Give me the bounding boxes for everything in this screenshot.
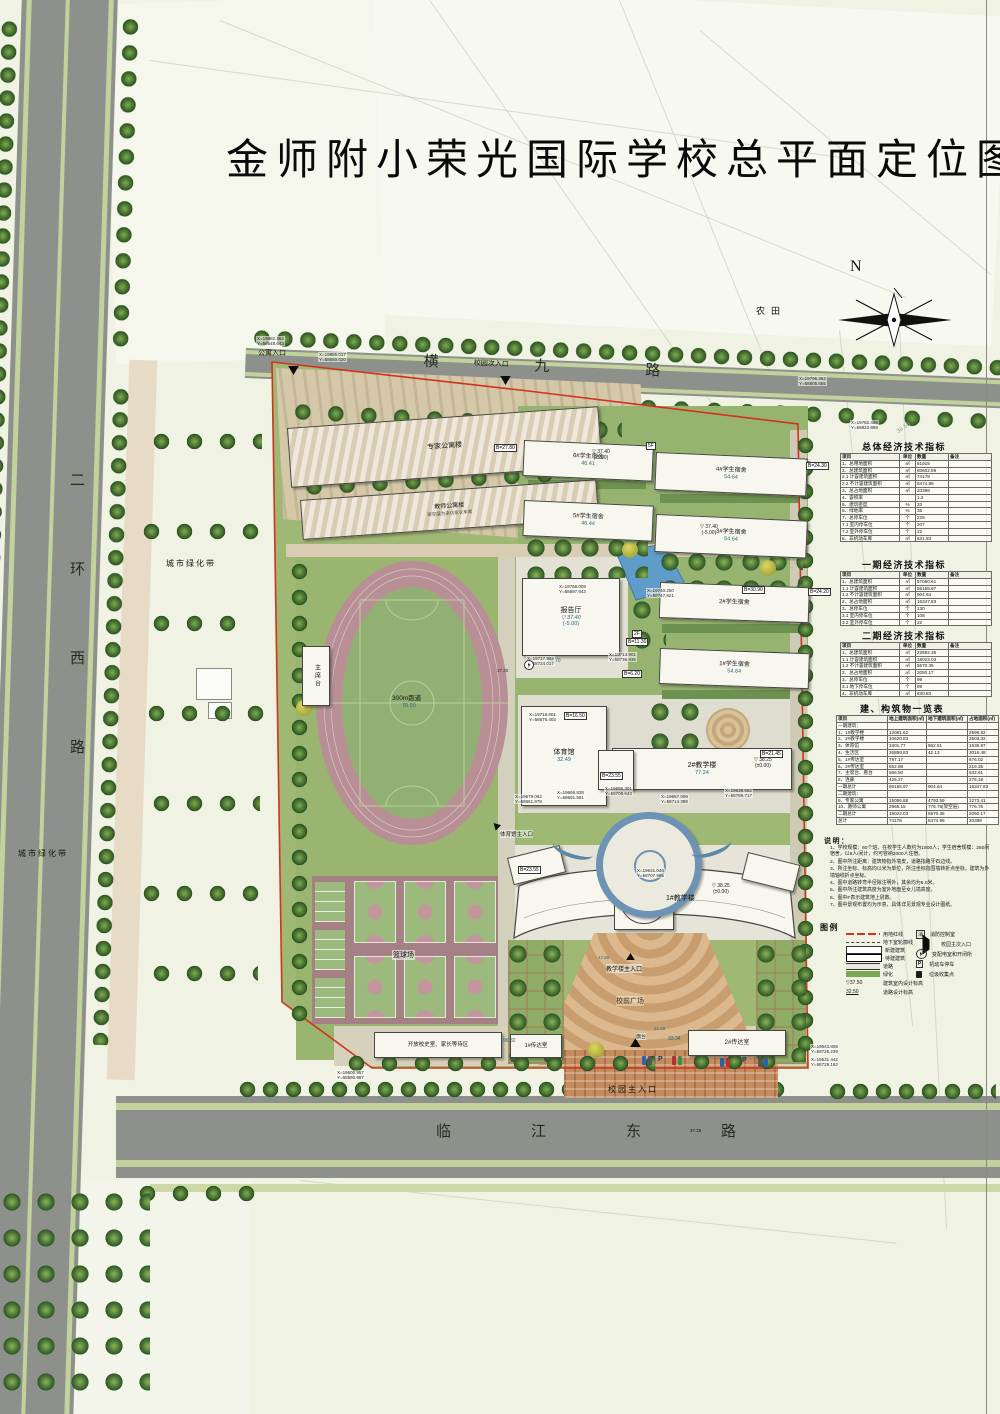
- table-cell: 2、总占地面积: [841, 670, 900, 677]
- height-tag: 2F: [632, 630, 642, 638]
- building-level-base: (-5.00): [563, 621, 579, 627]
- building-label: 2#学生宿舍: [719, 599, 750, 607]
- table-cell: 80602.99: [916, 467, 949, 474]
- table-cell: 3.1 地下停车位: [841, 683, 900, 690]
- height-tag: B=21.45: [760, 750, 783, 758]
- table-cell: [949, 528, 992, 535]
- table-cell: 9、专家公寓: [837, 797, 888, 804]
- rostrum-building: 主席台: [302, 646, 330, 706]
- table-cell: 12081.62: [888, 729, 927, 736]
- volleyball-court: [315, 882, 345, 922]
- table-cell: [927, 756, 968, 763]
- table-cell: 7、总停车位: [841, 515, 900, 522]
- table-cell: 1.2: [916, 494, 949, 501]
- green-belt-label-southwest: 城市绿化带: [18, 848, 68, 859]
- hedge-row: [662, 690, 790, 699]
- table-cell: 3、体育馆: [837, 743, 888, 750]
- table-header-cell: 项目: [841, 454, 900, 461]
- coordinate-label: X=19656.301Y=58708.643: [604, 786, 633, 796]
- table-cell: ㎡: [900, 585, 916, 592]
- front-plaza-label: 校前广场: [616, 996, 644, 1006]
- table-header-cell: 单位: [900, 643, 916, 650]
- table-cell: 8、非机动车库: [841, 535, 900, 542]
- road-symbol: [846, 963, 880, 970]
- drawing-frame-line: [986, 0, 987, 1414]
- table-cell: 35: [916, 508, 949, 515]
- table-cell: 425.27: [888, 777, 927, 784]
- table-cell: 652.98: [888, 763, 927, 770]
- building-length: 54.64: [727, 669, 741, 676]
- table-header-cell: 项目: [841, 572, 900, 579]
- table-cell: 个: [900, 605, 916, 612]
- level-mark: ▽ 37.40(-5.00): [700, 525, 718, 536]
- legend-item-transformer: 变配电室和开闭所: [916, 950, 972, 958]
- legend-item-entrance: 校园主次入口: [916, 940, 971, 948]
- path-elevation: 37.30: [497, 668, 508, 673]
- road-verge-line: [116, 1103, 1000, 1110]
- parking-strip-west: P: [640, 1054, 684, 1068]
- table-cell: [927, 736, 968, 743]
- building-list-table: 项目地上建筑面积(㎡)地下建筑面积(㎡)占地面积(㎡)一期建筑：1、1#教学楼1…: [836, 715, 999, 825]
- table-cell: [949, 515, 992, 522]
- table-cell: 862.51: [927, 743, 968, 750]
- table-cell: [900, 494, 916, 501]
- table-cell: [968, 790, 999, 797]
- table-cell: 1.1 计容建筑面积: [841, 656, 900, 663]
- phase1-indicators-title: 一期经济技术指标: [862, 558, 946, 571]
- table-cell: 总计: [837, 817, 888, 824]
- notes-title: 说明：: [824, 836, 850, 846]
- level-mark: ▽ 37.40(-5.00): [592, 450, 610, 461]
- table-cell: 7.1 室内停车位: [841, 521, 900, 528]
- table-cell: 一期建筑：: [837, 722, 888, 729]
- future-building-symbol: [846, 954, 882, 962]
- table-cell: 2050.17: [916, 670, 949, 677]
- table-cell: 74178: [916, 474, 949, 481]
- table-cell: 个: [900, 515, 916, 522]
- table-cell: 个: [900, 528, 916, 535]
- gatehouse2-building: 2#传达室: [688, 1030, 786, 1056]
- table-cell: [949, 605, 992, 612]
- table-cell: 20398: [916, 487, 949, 494]
- phase1-indicators-table: 项目单位数量备注1、总建筑面积㎡57060.611.1 计容建筑面积㎡56155…: [840, 571, 992, 626]
- basketball-court: [454, 881, 496, 943]
- table-cell: [927, 790, 968, 797]
- track-label: 300m跑道: [392, 692, 421, 702]
- table-header-cell: 占地面积(㎡): [968, 716, 999, 723]
- table-cell: 904.64: [916, 592, 949, 599]
- belt-tree-row: [150, 612, 250, 635]
- basketball-court: [354, 881, 396, 943]
- note-item: 3、所注坐标、标高均以米为单位，所注坐标指围墙转折点坐标，建筑为外墙轴线折点坐标…: [830, 867, 992, 880]
- track-length: 70.00: [402, 703, 416, 709]
- table-cell: 15056.88: [888, 797, 927, 804]
- overall-indicators-title: 总体经济技术指标: [862, 440, 946, 453]
- table-cell: ㎡: [900, 592, 916, 599]
- table-cell: 23592.38: [916, 649, 949, 656]
- apartment-entrance-label: 公寓入口: [258, 348, 286, 358]
- table-cell: 1、总建筑面积: [841, 649, 900, 656]
- table-header-cell: 数量: [916, 454, 949, 461]
- table-cell: [949, 592, 992, 599]
- table-cell: 2.2 不计容建筑面积: [841, 481, 900, 488]
- table-cell: [949, 612, 992, 619]
- table-cell: 1.2 不计容建筑面积: [841, 592, 900, 599]
- table-cell: 4、生活区: [837, 749, 888, 756]
- coordinate-label: X=19543.808Y=58725.239: [810, 1044, 839, 1054]
- table-cell: ㎡: [900, 690, 916, 697]
- table-cell: 6474.99: [916, 481, 949, 488]
- gym-entrance-label: 体育馆主入口: [500, 830, 533, 838]
- table-cell: 18022.03: [916, 656, 949, 663]
- legend-item-garbage: 垃圾收集点: [916, 970, 954, 978]
- height-tag: B=16.50: [564, 712, 587, 720]
- west-road-label: 二环西路: [66, 472, 87, 828]
- building-length: 54.64: [724, 536, 738, 543]
- table-cell: [949, 535, 992, 542]
- table-cell: 5、建筑密度: [841, 501, 900, 508]
- table-header-cell: 项目: [841, 643, 900, 650]
- coordinate-label: X=19796.362Y=58805.665: [798, 376, 827, 386]
- note-item: 5、图中所注建筑高度为室外地面至女儿墙高度。: [830, 888, 992, 894]
- building-label: 体育馆: [554, 749, 575, 757]
- table-cell: 108: [916, 612, 949, 619]
- table-cell: [888, 790, 927, 797]
- table-cell: 130: [916, 605, 949, 612]
- accent-tree: [622, 542, 638, 558]
- table-cell: 99: [916, 676, 949, 683]
- coordinate-label: X=19657.009Y=58714.388: [660, 794, 689, 804]
- phase2-indicators-table: 项目单位数量备注1、总建筑面积㎡23592.381.1 计容建筑面积㎡18022…: [840, 642, 992, 697]
- table-cell: 个: [900, 521, 916, 528]
- existing-building: [196, 668, 232, 700]
- table-cell: 2050.17: [968, 811, 999, 818]
- table-cell: 22: [916, 619, 949, 626]
- table-cell: ㎡: [900, 670, 916, 677]
- building-length: 46.41: [581, 461, 595, 468]
- table-cell: ㎡: [900, 481, 916, 488]
- table-cell: [949, 460, 992, 467]
- table-header-cell: 数量: [916, 572, 949, 579]
- volleyball-court: [315, 978, 345, 1018]
- table-header-cell: 地上建筑面积(㎡): [888, 716, 927, 723]
- height-tag: B=24.20: [808, 588, 831, 596]
- table-cell: [949, 508, 992, 515]
- table-cell: 20398: [968, 817, 999, 824]
- table-cell: 一期总计: [837, 783, 888, 790]
- table-cell: 676.02: [968, 756, 999, 763]
- south-verge: [150, 1184, 1000, 1192]
- table-cell: 个: [900, 683, 916, 690]
- memorial-garden: [706, 708, 750, 752]
- accent-tree: [760, 560, 776, 576]
- flag-dim: 21.00: [654, 1026, 665, 1031]
- table-header-cell: 备注: [949, 454, 992, 461]
- table-header-cell: 单位: [900, 454, 916, 461]
- floor-level-symbol: ▽37.50: [846, 980, 880, 986]
- dorm5-building: 5#学生宿舍 46.44: [522, 500, 653, 542]
- table-cell: 10、教师公寓: [837, 804, 888, 811]
- table-cell: 2、总占地面积: [841, 599, 900, 606]
- height-tag: B=23.55: [600, 772, 623, 780]
- coordinate-label: X=19531.442Y=58729.162: [810, 1057, 839, 1067]
- memorial-grove: [648, 700, 706, 750]
- table-cell: 3401.77: [888, 743, 927, 750]
- track-west-tree-row: [288, 560, 311, 1025]
- legend-item-basement: 地下室轮廓线: [846, 938, 913, 946]
- table-cell: 57060.61: [916, 578, 949, 585]
- building-label: 2#教学楼: [688, 762, 717, 770]
- table-cell: 6、绿地率: [841, 508, 900, 515]
- gatehouse1-building: 1#传达室: [510, 1034, 562, 1058]
- plaza-elevation: 17.80: [598, 955, 609, 960]
- dorm1-building: 1#学生宿舍 54.64: [659, 648, 810, 689]
- height-tag: B=11.30: [626, 638, 648, 646]
- open-history-room-building: 开放校史室、家长等待区: [374, 1032, 502, 1058]
- table-header-cell: 项目: [837, 716, 888, 723]
- table-cell: [888, 722, 927, 729]
- table-header-cell: 地下建筑面积(㎡): [927, 716, 968, 723]
- transformer-symbol: [916, 949, 927, 959]
- table-cell: [927, 763, 968, 770]
- road-level-symbol: 32.50: [846, 989, 880, 995]
- table-cell: 2、总建筑面积: [841, 467, 900, 474]
- table-cell: 1.1 计容建筑面积: [841, 585, 900, 592]
- table-cell: 1536.97: [968, 743, 999, 750]
- hedge-row: [662, 624, 800, 633]
- table-cell: 33: [916, 501, 949, 508]
- table-cell: 8、连廊: [837, 777, 888, 784]
- table-cell: [927, 777, 968, 784]
- table-cell: 22: [916, 528, 949, 535]
- green-belt-label-west: 城市绿化带: [166, 558, 216, 569]
- table-cell: 631.93: [916, 535, 949, 542]
- table-cell: 2598.82: [968, 729, 999, 736]
- car: [678, 1056, 682, 1065]
- table-cell: ㎡: [900, 460, 916, 467]
- level-mark: ▽ 38.25(±0.00): [754, 758, 772, 769]
- table-cell: 16347.83: [916, 599, 949, 606]
- building-label: 1#传达室: [525, 1043, 548, 1049]
- table-cell: [968, 722, 999, 729]
- legend-item-redline: 用地红线: [846, 930, 903, 938]
- table-cell: 42.13: [927, 749, 968, 756]
- car: [764, 1058, 768, 1067]
- street-tree-row: [136, 1182, 266, 1205]
- table-cell: [949, 501, 992, 508]
- gate2-length: 33.34: [668, 1036, 681, 1042]
- volleyball-court: [315, 930, 345, 970]
- table-header-cell: 单位: [900, 572, 916, 579]
- open-room-length: 96.32: [503, 1038, 516, 1044]
- site-plan-canvas: 专家公寓楼 教师公寓楼 架空层为来访家长车库 6#学生宿舍 46.41 4#学生…: [0, 0, 1000, 1414]
- legend-item-road-level: 32.50道路设计标高: [846, 988, 913, 996]
- coordinate-label: X=19631.046Y=58707.985: [636, 868, 665, 878]
- basketball-label: 篮球场: [392, 950, 415, 960]
- basketball-court: [354, 956, 396, 1018]
- redline-symbol: [846, 933, 880, 935]
- table-cell: [949, 585, 992, 592]
- building-length: 46.44: [581, 521, 595, 528]
- car: [672, 1056, 676, 1065]
- table-cell: [949, 656, 992, 663]
- basketball-court: [454, 956, 496, 1018]
- coordinate-label: X=19679.062Y=58661.978: [514, 794, 543, 804]
- table-cell: 275.18: [968, 777, 999, 784]
- height-tag: 5F: [646, 442, 656, 450]
- note-item: 6、图中F表示建筑地上层数。: [830, 896, 992, 902]
- belt-tree-row: [140, 520, 260, 543]
- road-verge-line: [116, 1160, 1000, 1167]
- new-building-symbol: [846, 946, 882, 954]
- drawing-title: 金师附小荣光国际学校总平面定位图: [226, 126, 1000, 187]
- legend-item-floor-level: ▽37.50建筑室内设计标高: [846, 979, 923, 987]
- table-cell: 3、总停车位: [841, 676, 900, 683]
- table-cell: 3.2 室外停车位: [841, 619, 900, 626]
- compass-icon: [836, 288, 956, 358]
- table-cell: 630.83: [916, 690, 949, 697]
- basement-outline-symbol: [846, 942, 880, 943]
- table-cell: 666.50: [888, 770, 927, 777]
- legend-title: 图例: [820, 922, 839, 933]
- table-cell: [927, 729, 968, 736]
- note-item: 4、图中道路转弯半径除注明外，其余均为6.0米。: [830, 881, 992, 887]
- coordinate-label: X=19782.468Y=58822.898: [850, 420, 879, 430]
- accent-tree: [588, 1042, 604, 1058]
- table-cell: 4793.59: [927, 797, 968, 804]
- flag-platform-label: 旗台: [636, 1033, 646, 1040]
- table-cell: 797.17: [888, 756, 927, 763]
- building-length: 54.64: [724, 474, 738, 481]
- table-cell: 61915: [916, 460, 949, 467]
- table-cell: [949, 663, 992, 670]
- table-cell: 532.61: [968, 770, 999, 777]
- table-cell: 2、2#教学楼: [837, 736, 888, 743]
- table-cell: 74178: [888, 817, 927, 824]
- height-tag: B=23.55: [518, 866, 541, 874]
- transformer-icon: [524, 660, 534, 670]
- notes-list: 1、学校规模：60个班，在校学生人数约为1800人；学生宿舍规模：250间宿舍，…: [830, 846, 992, 911]
- height-tag: B=30.90: [742, 586, 765, 594]
- building-length: 32.49: [557, 757, 571, 763]
- building-list-title: 建、构筑物一览表: [860, 702, 944, 715]
- table-cell: 2503.32: [968, 736, 999, 743]
- table-cell: 1、1#教学楼: [837, 729, 888, 736]
- table-cell: 776.76: [968, 804, 999, 811]
- dorm2-building: 2#学生宿舍: [659, 582, 810, 623]
- height-tag: B=6.20: [622, 670, 642, 678]
- table-cell: [949, 690, 992, 697]
- table-cell: 10620.83: [888, 736, 927, 743]
- table-cell: [949, 494, 992, 501]
- table-cell: 二期总计: [837, 811, 888, 818]
- table-cell: [949, 619, 992, 626]
- table-cell: 2.1 计容建筑面积: [841, 474, 900, 481]
- table-cell: 26899.83: [888, 749, 927, 756]
- belt-tree-row: [150, 792, 260, 815]
- table-cell: 904.64: [927, 783, 968, 790]
- table-cell: ㎡: [900, 487, 916, 494]
- car: [758, 1058, 762, 1067]
- street-tree-row: [826, 1080, 996, 1103]
- legend-item-green: 绿化: [846, 970, 893, 978]
- note-item: 7、图中景观布置均为示意，具体详见景观专业设计图纸。: [830, 903, 992, 909]
- coordinate-label: X=19638.662Y=58759.717: [724, 788, 753, 798]
- coordinate-label: X=19666.838Y=58691.591: [556, 790, 585, 800]
- legend-item-future-building: 待建建筑: [846, 954, 905, 962]
- table-cell: 1.2 不计容建筑面积: [841, 663, 900, 670]
- car: [726, 1058, 730, 1067]
- coordinate-label: X=19713.901Y=58736.935: [608, 652, 637, 662]
- table-cell: [927, 770, 968, 777]
- level-mark: ▽ 38.25(±0.00): [712, 884, 730, 895]
- table-cell: 1、总建筑面积: [841, 578, 900, 585]
- parking-p: P: [742, 1057, 747, 1064]
- table-cell: [949, 481, 992, 488]
- table-cell: ㎡: [900, 649, 916, 656]
- building-label: 2#传达室: [725, 1040, 750, 1047]
- table-cell: 7、主席台、看台: [837, 770, 888, 777]
- note-item: 1、学校规模：60个班，在校学生人数约为1800人；学生宿舍规模：250间宿舍，…: [830, 846, 992, 859]
- south-road-elevation: 37.25: [690, 1128, 701, 1133]
- table-cell: %: [900, 508, 916, 515]
- table-cell: 3.1 室内停车位: [841, 612, 900, 619]
- dorm3-building: 3#学生宿舍 54.64: [654, 514, 808, 559]
- belt-tree-row: [150, 962, 258, 985]
- southwest-grove: [0, 1190, 150, 1405]
- height-tag: B=27.80: [494, 444, 517, 452]
- car: [642, 1056, 646, 1065]
- table-cell: 3、总占地面积: [841, 487, 900, 494]
- greenery-symbol: [846, 971, 880, 977]
- teach-connector-building: [598, 750, 634, 790]
- table-cell: 2965.15: [888, 804, 927, 811]
- height-tag: B=24.30: [806, 462, 829, 470]
- belt-tree-row: [145, 702, 265, 725]
- building-label: 主席台: [313, 664, 320, 688]
- parking-strip-east: P: [718, 1056, 772, 1070]
- table-cell: 个: [900, 612, 916, 619]
- table-cell: ㎡: [900, 474, 916, 481]
- farmland-label: 农田: [756, 304, 786, 317]
- coordinate-label: X=19600.957Y=58560.987: [336, 1070, 365, 1080]
- dorm6-building: 6#学生宿舍 46.41: [522, 440, 653, 482]
- coordinate-label: X=19768.009Y=58697.943: [558, 584, 587, 594]
- table-header-cell: 数量: [916, 643, 949, 650]
- coordinate-label: X=19740.250Y=58747.821: [646, 588, 675, 598]
- table-cell: 4、非机动车库: [841, 690, 900, 697]
- table-cell: 776.76(架空层): [927, 804, 968, 811]
- table-cell: 3016.48: [968, 749, 999, 756]
- overall-indicators-table: 项目单位数量备注1、总用地面积㎡619152、总建筑面积㎡80602.992.1…: [840, 453, 992, 542]
- parking-p: P: [658, 1056, 663, 1063]
- table-header-cell: 备注: [949, 572, 992, 579]
- legend-item-road: 道路: [846, 962, 893, 970]
- table-cell: [949, 599, 992, 606]
- table-header-cell: 备注: [949, 643, 992, 650]
- table-cell: 个: [900, 619, 916, 626]
- table-cell: [949, 670, 992, 677]
- table-cell: ㎡: [900, 599, 916, 606]
- table-cell: 5570.35: [916, 663, 949, 670]
- table-cell: 3、总停车位: [841, 605, 900, 612]
- table-cell: %: [900, 501, 916, 508]
- table-cell: [949, 487, 992, 494]
- table-cell: ㎡: [900, 656, 916, 663]
- table-cell: 18022.03: [888, 811, 927, 818]
- table-cell: 6474.99: [927, 817, 968, 824]
- building-label: 开放校史室、家长等待区: [408, 1042, 469, 1048]
